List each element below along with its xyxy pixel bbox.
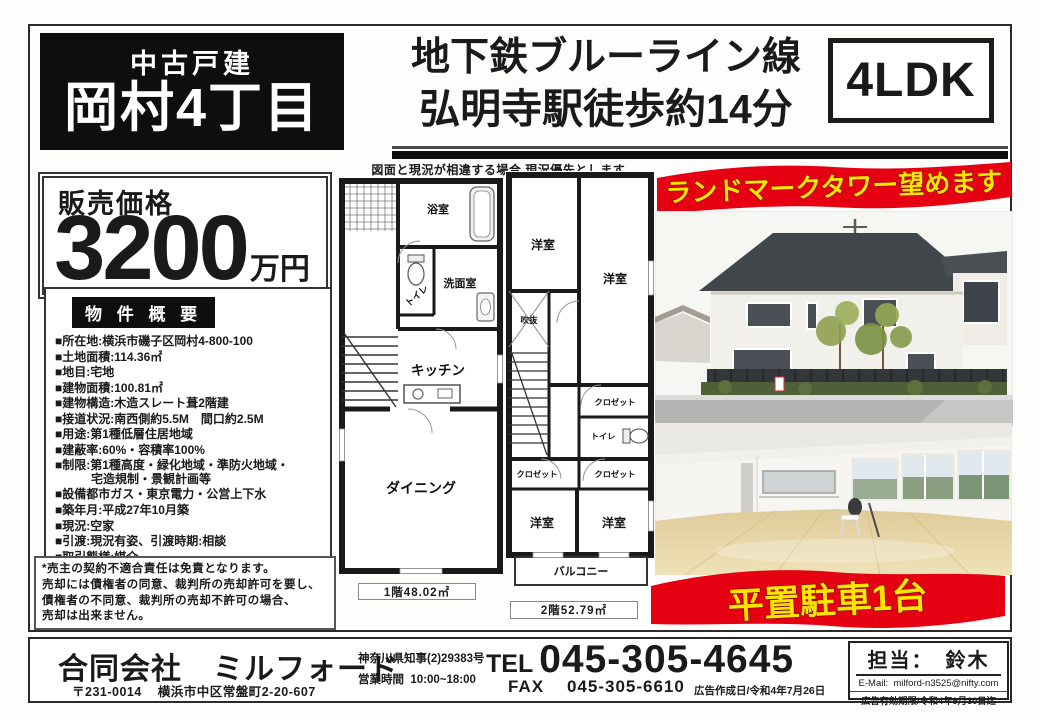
overview-item: ■用途:第1種低層住居地域 <box>55 428 324 442</box>
property-type: 中古戸建 <box>40 42 344 81</box>
room-label-west3: 洋室 <box>530 515 554 530</box>
station-line1: 地下鉄ブルーライン線 <box>388 32 824 85</box>
staff-box: 担当： 鈴木 E-Mail: milford-n3525@nifty.com 広… <box>848 641 1009 700</box>
overview-item: ■土地面積:114.36㎡ <box>55 351 324 365</box>
price-box: 販売価格 3200 万円 <box>38 172 332 299</box>
room-label-void: 吹抜 <box>520 315 538 325</box>
area-label-2f: 2階52.79㎡ <box>510 601 638 619</box>
layout-badge: 4LDK <box>828 38 994 123</box>
room-label-dining: ダイニング <box>386 480 456 496</box>
room-label-closet3: クロゼット <box>595 469 636 479</box>
tel-row: TEL 045-305-4645 <box>486 638 794 682</box>
tel-number: 045-305-4645 <box>539 638 794 682</box>
headline-rule-thin <box>392 146 1008 149</box>
room-label-west2: 洋室 <box>603 271 627 286</box>
fax-number: 045-305-6610 <box>567 677 685 696</box>
interior-windows <box>853 451 1009 499</box>
overview-list: ■所在地:横浜市磯子区岡村4-800-100 ■土地面積:114.36㎡ ■地目… <box>55 335 324 564</box>
email-line: E-Mail: milford-n3525@nifty.com <box>850 678 1007 689</box>
view-banner: ランドマークタワー望めます <box>657 161 1011 216</box>
company-address: 〒231-0014 横浜市中区常盤町2-20-607 <box>72 681 316 700</box>
toilet-icon <box>408 255 424 285</box>
floorplan-1f: 浴室 トイレ 洗面室 キッチン ダイニング <box>338 177 504 575</box>
area-label-1f: 1階48.02㎡ <box>358 583 476 600</box>
business-hours: 営業時間 10:00~18:00 <box>358 671 476 687</box>
room-label-closet1: クロゼット <box>595 397 636 407</box>
sink-icon <box>477 293 494 321</box>
room-label-toilet-2f: トイレ <box>591 432 616 441</box>
station-line2: 弘明寺駅徒歩約14分 <box>388 85 824 134</box>
fax-row: FAX 045-305-6610 <box>508 677 685 697</box>
hours-value: 10:00~18:00 <box>410 674 476 686</box>
overview-item: ■現況:空家 <box>55 520 324 534</box>
price-amount: 3200 <box>54 206 247 291</box>
seller-note: *売主の契約不適合責任は免責となります。 売却には債権者の同意、裁判所の売却許可… <box>34 556 336 630</box>
staff-name: 担当： 鈴木 <box>856 644 1001 676</box>
station-headline: 地下鉄ブルーライン線 弘明寺駅徒歩約14分 <box>388 32 824 134</box>
address-text: 横浜市中区常盤町2-20-607 <box>158 685 316 699</box>
headline-rule-thick <box>392 151 1008 159</box>
parking-banner: 平置駐車1台 <box>651 564 1005 630</box>
room-label-bath: 浴室 <box>427 202 449 216</box>
room-label-closet2: クロゼット <box>517 469 558 479</box>
price-unit: 万円 <box>250 244 310 288</box>
email-value: milford-n3525@nifty.com <box>893 678 998 689</box>
exterior-photo <box>655 211 1013 426</box>
overview-item: ■引渡:現況有姿、引渡時期:相談 <box>55 535 324 549</box>
postal-code: 〒231-0014 <box>72 685 142 699</box>
email-label: E-Mail: <box>859 678 889 689</box>
kitchen-counter <box>404 385 460 403</box>
property-name: 岡村4丁目 <box>40 81 344 136</box>
overview-item: ■築年月:平成27年10月築 <box>55 504 324 518</box>
interior-photo <box>655 423 1012 575</box>
room-label-balcony: バルコニー <box>554 565 609 578</box>
overview-box: 物 件 概 要 ■所在地:横浜市磯子区岡村4-800-100 ■土地面積:114… <box>44 287 332 568</box>
overview-item: ■接道状況:南西側約5.5M 間口約2.5M <box>55 413 324 427</box>
overview-item: ■設備都市ガス・東京電力・公営上下水 <box>55 488 324 502</box>
flyer-page: 中古戸建 岡村4丁目 地下鉄ブルーライン線 弘明寺駅徒歩約14分 4LDK 図面… <box>0 0 1040 720</box>
overview-item: ■制限:第1種高度・緑化地域・準防火地域・ 宅造規制・景観計画等 <box>55 459 324 486</box>
room-label-west1: 洋室 <box>531 237 555 252</box>
overview-item: ■建物構造:木造スレート葺2階建 <box>55 397 324 411</box>
room-label-kitchen: キッチン <box>411 363 465 378</box>
toilet-icon-2f <box>623 429 648 443</box>
ad-created-date: 広告作成日/令和4年7月26日 <box>694 683 825 698</box>
property-title-box: 中古戸建 岡村4丁目 <box>40 33 344 150</box>
ad-expiry-date: 広告有効期限/令和4年9月30日迄 <box>850 691 1007 707</box>
hours-label: 営業時間 <box>358 674 404 686</box>
floorplan-2f: 洋室 洋室 吹抜 クロゼット トイレ クロゼット クロゼット 洋室 洋室 バルコ… <box>505 171 655 595</box>
tel-label: TEL <box>486 650 533 679</box>
overview-title: 物 件 概 要 <box>72 297 215 328</box>
license-number: 神奈川県知事(2)29383号 <box>358 650 485 666</box>
overview-item: ■地目:宅地 <box>55 366 324 380</box>
room-label-west4: 洋室 <box>602 515 626 530</box>
fax-label: FAX <box>508 677 544 696</box>
overview-item: ■建蔽率:60%・容積率100% <box>55 444 324 458</box>
room-label-washroom: 洗面室 <box>444 276 477 290</box>
overview-item: ■所在地:横浜市磯子区岡村4-800-100 <box>55 335 324 349</box>
bathtub-icon <box>470 187 494 241</box>
overview-item: ■建物面積:100.81㎡ <box>55 382 324 396</box>
